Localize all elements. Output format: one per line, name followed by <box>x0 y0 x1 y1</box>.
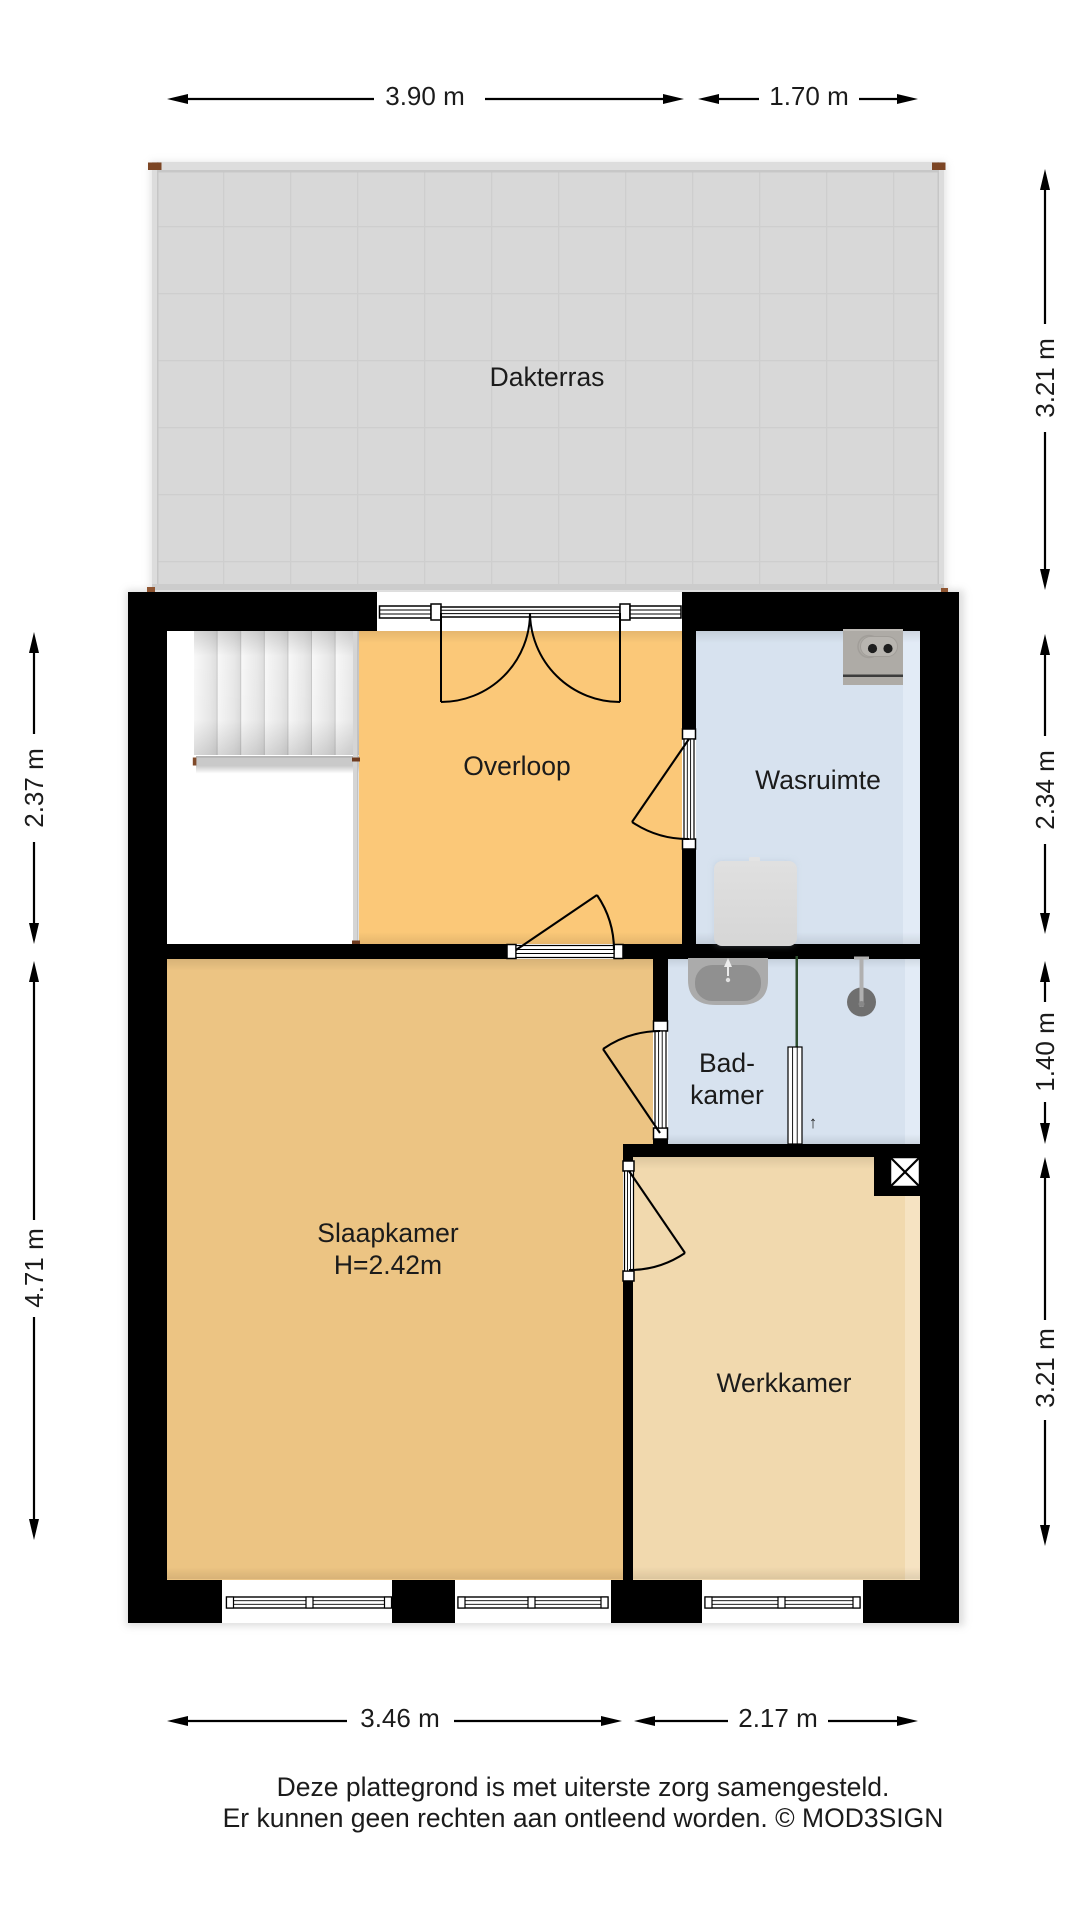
svg-text:3.90 m: 3.90 m <box>385 81 465 111</box>
svg-text:Werkkamer: Werkkamer <box>717 1368 852 1398</box>
svg-text:H=2.42m: H=2.42m <box>334 1250 442 1280</box>
svg-text:3.21 m: 3.21 m <box>1030 1328 1060 1408</box>
svg-text:1.70 m: 1.70 m <box>769 81 849 111</box>
svg-text:4.71 m: 4.71 m <box>19 1228 49 1308</box>
svg-text:Overloop: Overloop <box>463 751 571 781</box>
svg-text:Wasruimte: Wasruimte <box>755 765 881 795</box>
svg-text:3.46 m: 3.46 m <box>360 1703 440 1733</box>
svg-text:kamer: kamer <box>690 1080 764 1110</box>
svg-text:Bad-: Bad- <box>699 1048 755 1078</box>
svg-text:Dakterras: Dakterras <box>490 362 605 392</box>
svg-text:2.37 m: 2.37 m <box>19 748 49 828</box>
svg-text:Slaapkamer: Slaapkamer <box>317 1218 459 1248</box>
svg-text:2.34 m: 2.34 m <box>1030 750 1060 830</box>
svg-text:1.40 m: 1.40 m <box>1030 1012 1060 1092</box>
svg-text:Deze plattegrond is met uiters: Deze plattegrond is met uiterste zorg sa… <box>277 1772 890 1802</box>
svg-text:3.21 m: 3.21 m <box>1030 338 1060 418</box>
svg-text:2.17 m: 2.17 m <box>738 1703 818 1733</box>
svg-text:↑: ↑ <box>809 1113 818 1132</box>
svg-text:Er kunnen geen rechten aan ont: Er kunnen geen rechten aan ontleend word… <box>223 1803 944 1833</box>
